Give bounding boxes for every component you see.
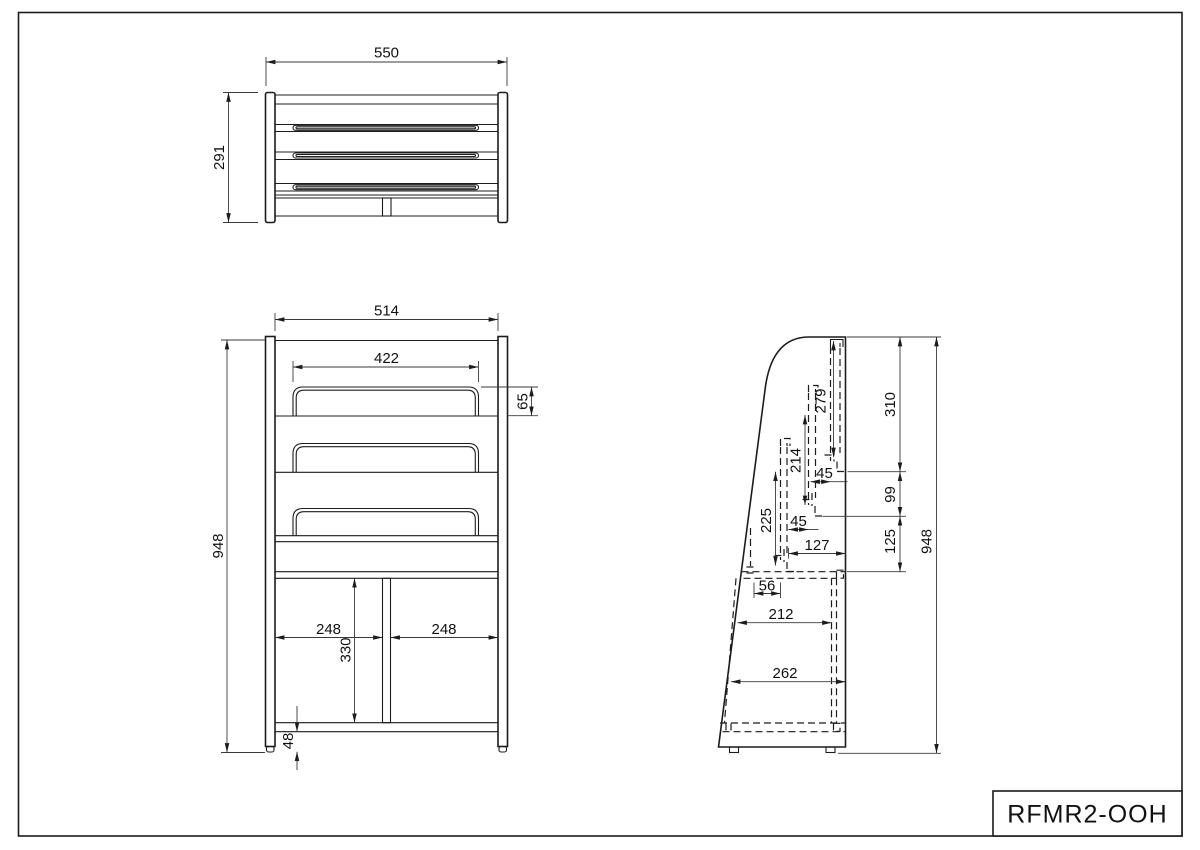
top-wire-hoops — [293, 125, 479, 189]
dim-side-rear-offset-label: 127 — [804, 537, 829, 554]
dim-side-segment-lower: 125 — [882, 516, 900, 571]
front-left-foot — [267, 747, 275, 753]
front-view-outline — [266, 337, 508, 753]
dim-front-base-clearance-label: 48 — [280, 733, 297, 750]
dim-side-pocket-front-depth-label: 225 — [758, 508, 775, 533]
front-wire-hoops — [293, 387, 479, 536]
dim-side-stagger-lower-label: 45 — [790, 513, 807, 530]
front-view: 514 422 65 948 248 248 330 — [210, 303, 538, 771]
dim-side-front-offset-label: 56 — [759, 578, 776, 595]
dim-side-shelf-depth-label: 212 — [768, 606, 793, 623]
dim-side-segment-lower-label: 125 — [882, 529, 899, 554]
top-right-end-cap — [498, 93, 508, 223]
drawing-canvas: 550 291 — [0, 0, 1200, 850]
dim-side-segment-mid: 99 — [882, 472, 900, 517]
dim-side-segment-top: 310 — [882, 337, 900, 472]
drawing-sheet: 550 291 — [0, 0, 1200, 850]
dim-side-pocket-front-depth: 225 — [758, 472, 776, 566]
dim-side-pocket-rear-depth-label: 279 — [813, 388, 830, 413]
side-front-foot — [730, 747, 739, 753]
dim-front-pocket-lip-label: 65 — [515, 393, 532, 410]
side-rear-foot — [826, 747, 835, 753]
dim-side-pocket-mid-depth: 214 — [788, 415, 806, 505]
dim-top-width-label: 550 — [374, 45, 399, 62]
dim-front-pocket-width: 422 — [293, 350, 479, 382]
front-right-post — [498, 337, 508, 747]
top-view: 550 291 — [211, 45, 508, 223]
dim-front-height: 948 — [210, 340, 265, 753]
dim-front-pocket-lip: 65 — [481, 387, 538, 416]
dim-front-shelf-right: 248 — [391, 621, 499, 638]
dim-front-frame-width: 514 — [275, 303, 498, 332]
dim-front-pocket-width-label: 422 — [374, 350, 399, 367]
front-left-post — [266, 337, 276, 747]
dim-top-depth-label: 291 — [211, 145, 228, 170]
top-view-outline — [266, 93, 508, 223]
dim-side-segment-top-label: 310 — [882, 392, 899, 417]
dim-front-frame-width-label: 514 — [374, 303, 399, 320]
dim-side-stagger-upper: 45 — [811, 465, 848, 482]
sheet-border — [19, 13, 1183, 837]
dim-top-width: 550 — [266, 45, 507, 87]
dim-front-shelf-right-label: 248 — [431, 621, 456, 638]
dim-side-stagger-upper-label: 45 — [816, 465, 833, 482]
dim-front-shelf-left-label: 248 — [316, 621, 341, 638]
dim-front-compartment: 330 — [338, 578, 355, 722]
dim-side-segment-mid-label: 99 — [882, 486, 899, 503]
dim-side-rear-offset: 127 — [789, 537, 846, 559]
part-number: RFMR2-OOH — [1007, 801, 1167, 829]
dim-front-shelf-left: 248 — [275, 621, 383, 638]
dim-side-height-label: 948 — [919, 529, 936, 554]
dim-side-base-depth: 262 — [731, 665, 846, 682]
title-block: RFMR2-OOH — [993, 791, 1182, 836]
dim-side-height: 948 — [919, 337, 937, 753]
top-center-divider — [383, 198, 392, 216]
dim-side-base-depth-label: 262 — [772, 665, 797, 682]
front-center-divider — [383, 578, 391, 722]
dim-front-base-clearance: 48 — [280, 706, 297, 770]
top-left-end-cap — [266, 93, 276, 223]
dim-side-stagger-lower: 45 — [789, 513, 819, 530]
front-right-foot — [499, 747, 507, 753]
dim-front-height-label: 948 — [210, 533, 227, 558]
dim-side-shelf-depth: 212 — [738, 606, 832, 623]
front-shelf-lines — [275, 341, 498, 732]
side-view: 279 214 225 45 45 127 56 — [719, 337, 942, 753]
dim-front-compartment-label: 330 — [338, 637, 355, 662]
dim-side-pocket-mid-depth-label: 214 — [788, 448, 805, 473]
dim-top-depth: 291 — [211, 93, 258, 223]
dim-side-front-offset: 56 — [754, 578, 781, 599]
